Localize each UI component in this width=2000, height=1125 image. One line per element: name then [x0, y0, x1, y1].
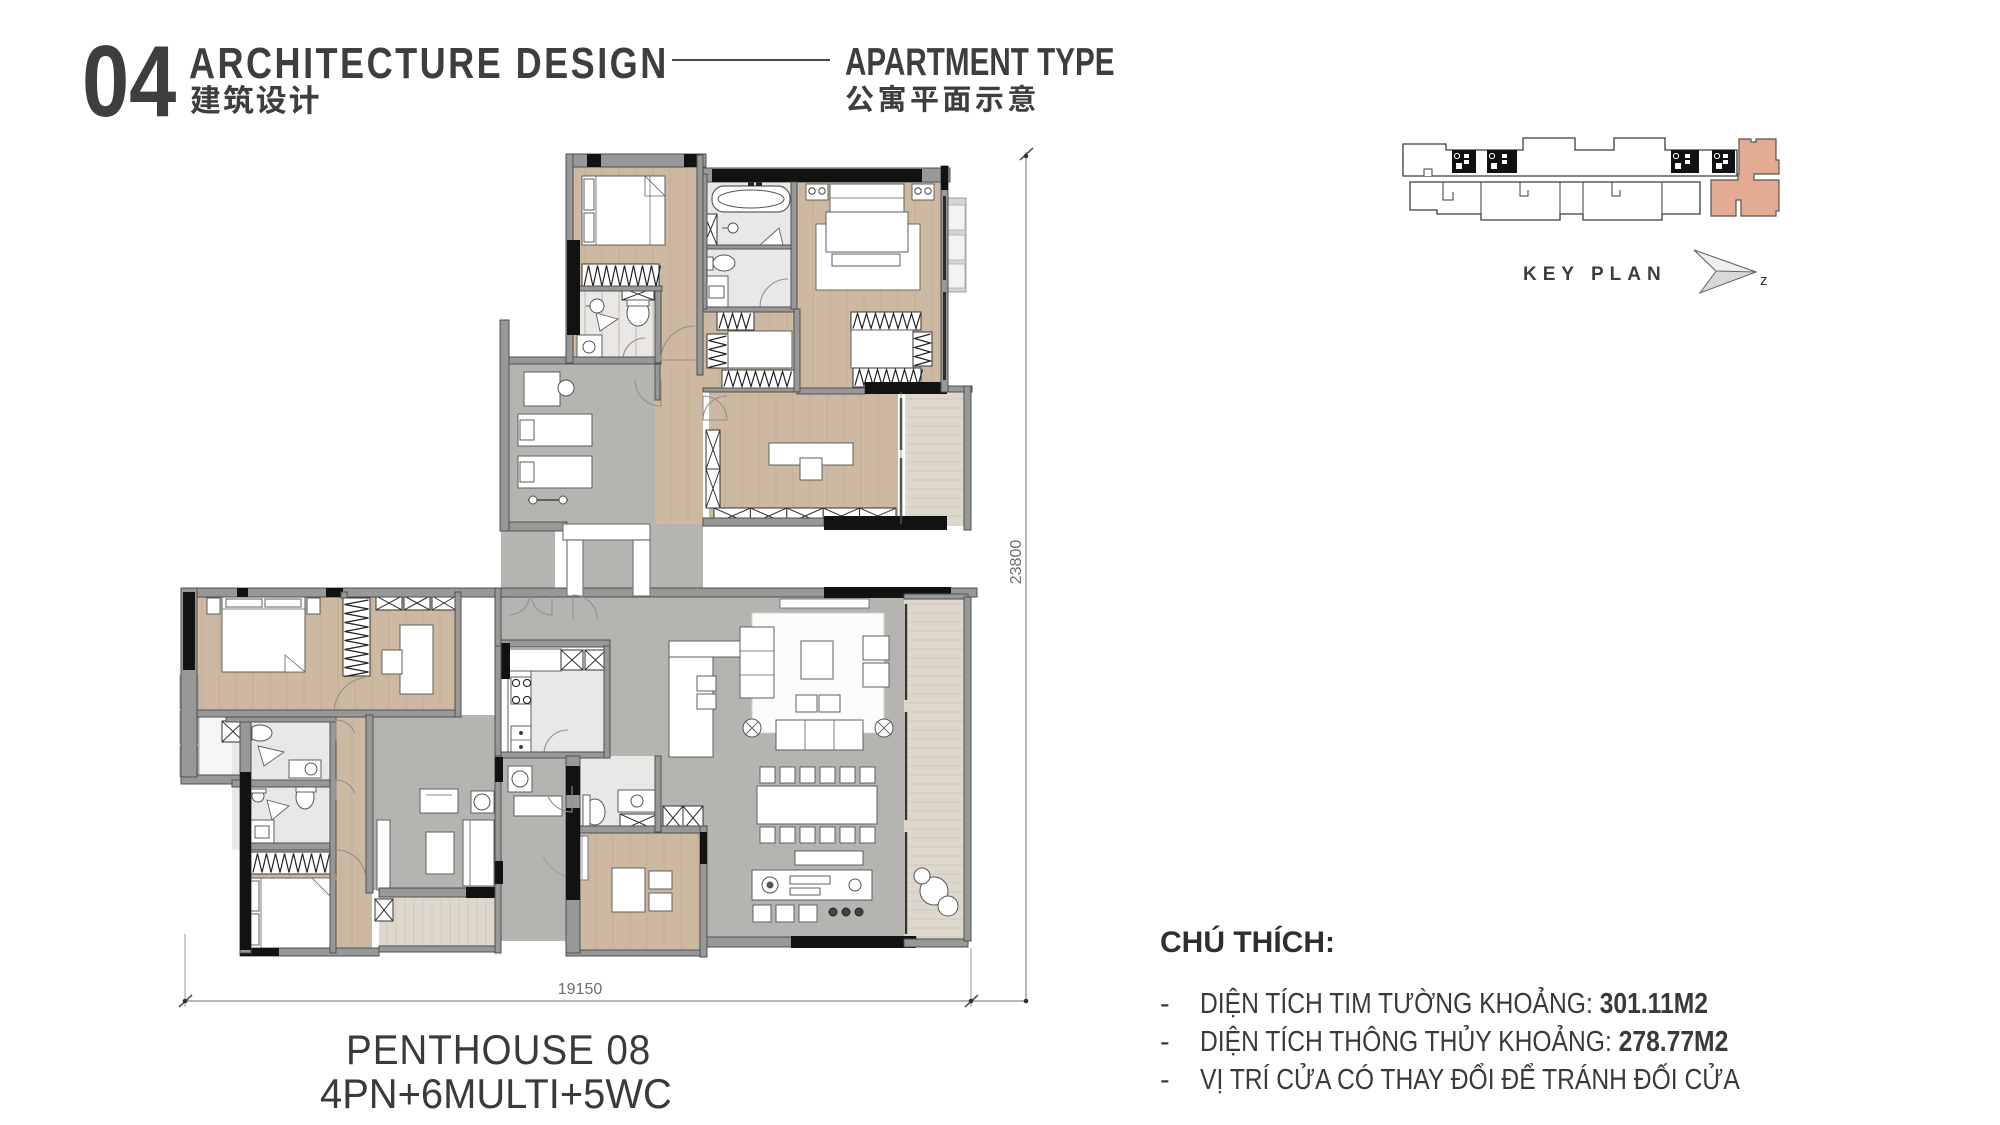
svg-text:23800: 23800: [1008, 540, 1025, 585]
svg-text:KEY PLAN: KEY PLAN: [1523, 264, 1667, 285]
svg-text:19150: 19150: [558, 981, 603, 998]
svg-text:z: z: [1760, 272, 1768, 289]
